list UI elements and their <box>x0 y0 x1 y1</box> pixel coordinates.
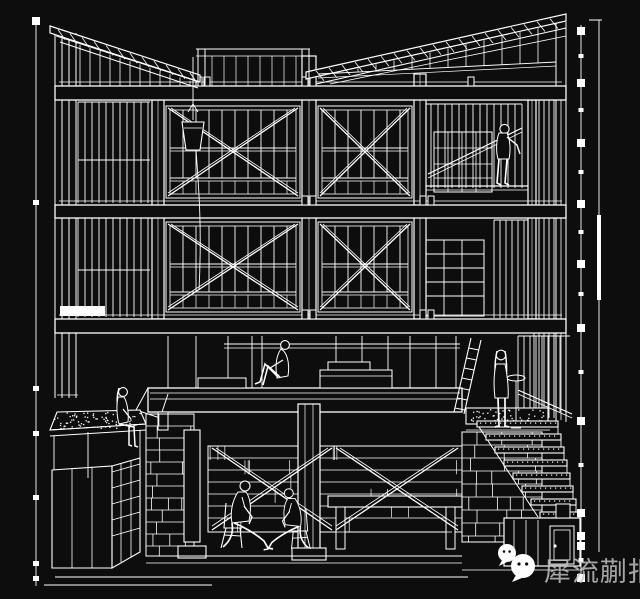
dimension-line-right-inner <box>577 25 585 583</box>
roof <box>50 14 566 88</box>
railing <box>518 336 572 418</box>
cabinet-box <box>52 458 140 568</box>
building-section-drawing <box>0 0 640 599</box>
shelving-unit <box>426 240 484 316</box>
person-sitting-on-deck <box>255 341 289 385</box>
basement <box>146 404 462 563</box>
dimension-line-right-outer <box>589 20 602 552</box>
right-wall <box>556 20 566 422</box>
drawing-stage: 犀流蒯报 <box>0 0 640 599</box>
cross-brace <box>320 108 410 196</box>
dimension-line-left <box>32 17 40 586</box>
scaffold-right-bay <box>424 128 530 192</box>
cross-brace <box>168 108 298 196</box>
ground-lines <box>44 570 584 585</box>
planter-green-roof <box>50 410 146 478</box>
